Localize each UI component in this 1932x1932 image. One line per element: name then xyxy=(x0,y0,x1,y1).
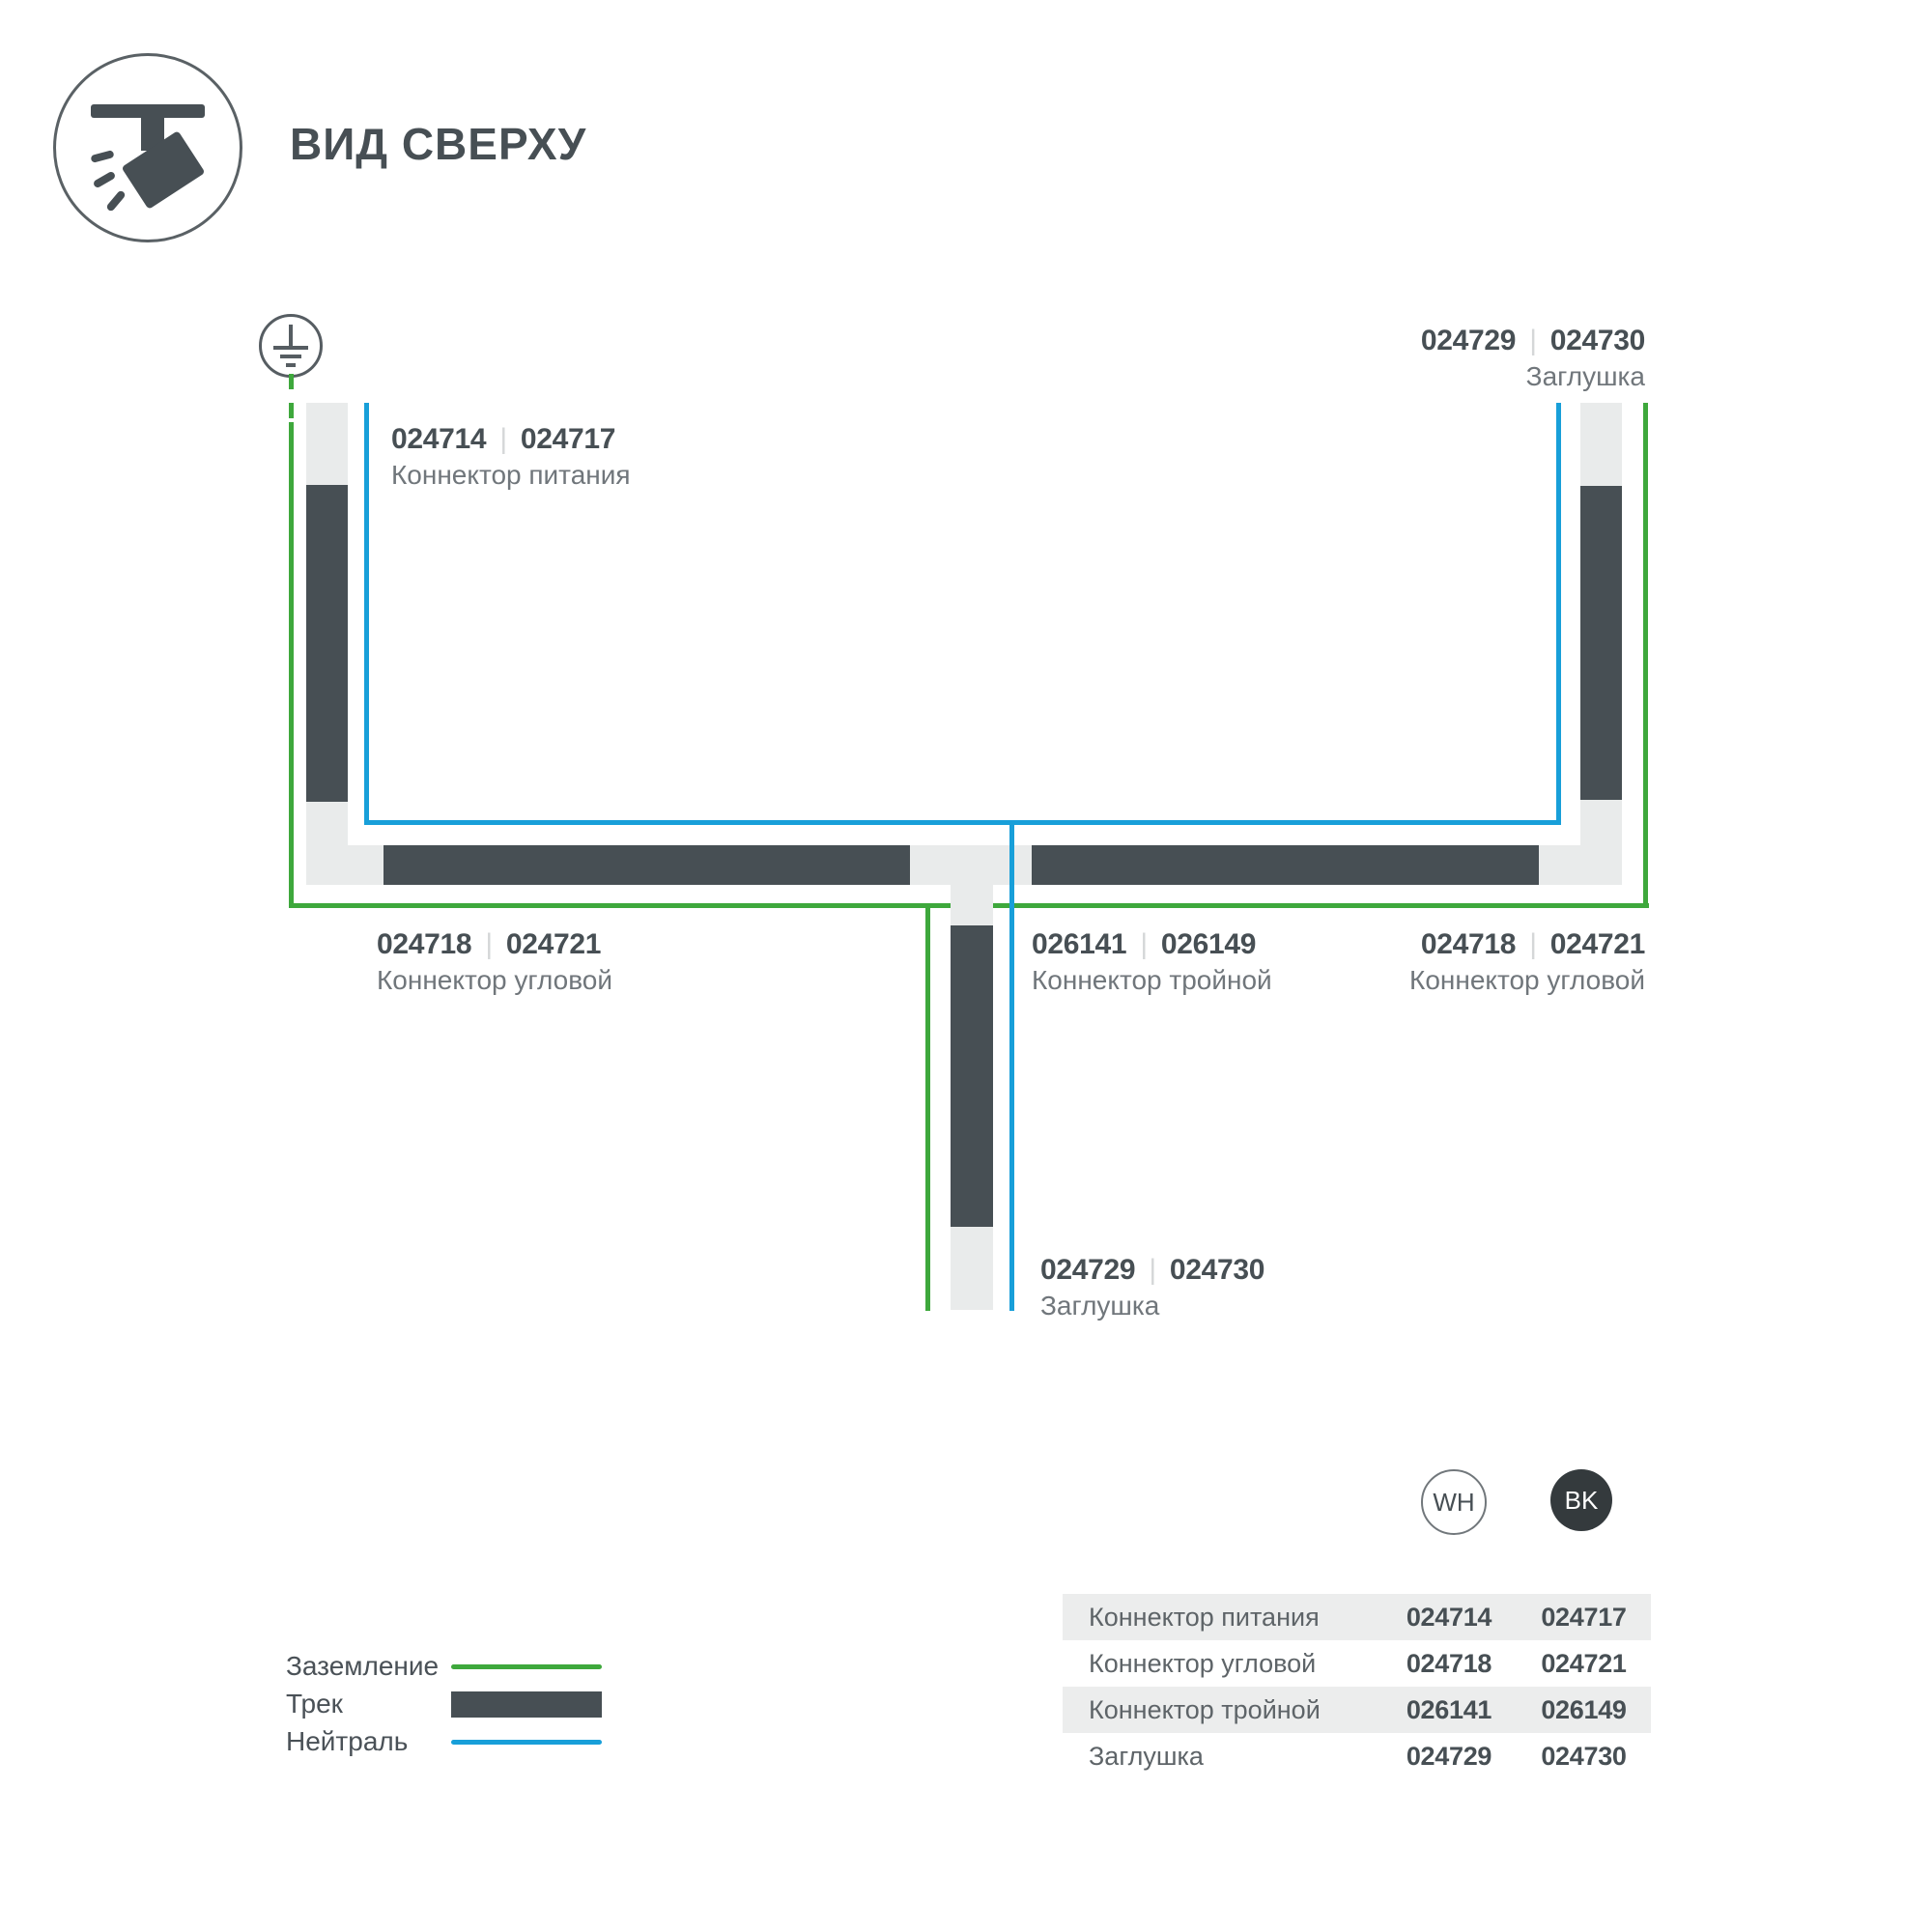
connector-name: Коннектор тройной xyxy=(1032,964,1272,997)
track-left xyxy=(306,485,348,802)
part-codes: 024714|024717 xyxy=(391,422,631,457)
table-row: Коннектор угловой 024718 024721 xyxy=(1063,1640,1651,1687)
legend-swatch-neutral-line xyxy=(451,1740,602,1745)
table-cell-name: Заглушка xyxy=(1063,1742,1381,1772)
tee-connector-piece xyxy=(951,885,993,925)
variant-badge-wh: WH xyxy=(1421,1469,1487,1535)
table-cell-bk-code: 024717 xyxy=(1517,1603,1651,1633)
part-codes: 024718|024721 xyxy=(1409,927,1645,962)
endcap-top-piece xyxy=(1580,403,1622,486)
ground-line-dashed xyxy=(289,374,294,424)
part-code-bk: 026149 xyxy=(1161,928,1256,960)
neutral-line-bottom xyxy=(364,820,1561,825)
part-code-wh: 024729 xyxy=(1040,1254,1135,1286)
table-cell-name: Коннектор тройной xyxy=(1063,1695,1381,1725)
legend-row-track: Трек xyxy=(286,1686,602,1722)
legend-swatch-track-bar xyxy=(451,1691,602,1718)
page-canvas: ВИД СВЕРХУ 024714|024717 Коннектор питан… xyxy=(0,0,1932,1932)
table-row: Заглушка 024729 024730 xyxy=(1063,1733,1651,1779)
track-bottom-right xyxy=(1032,845,1539,885)
corner-connector-right xyxy=(1580,800,1622,885)
legend-label: Заземление xyxy=(286,1651,451,1682)
table-row: Коннектор тройной 026141 026149 xyxy=(1063,1687,1651,1733)
label-corner-left: 024718|024721 Коннектор угловой xyxy=(377,927,612,997)
ground-line-left xyxy=(289,422,294,908)
code-divider: | xyxy=(1149,1254,1156,1286)
part-code-bk: 024730 xyxy=(1550,325,1645,356)
table-cell-bk-code: 026149 xyxy=(1517,1695,1651,1725)
power-connector-piece xyxy=(306,403,348,485)
legend-label: Трек xyxy=(286,1689,451,1719)
ground-stroke xyxy=(286,363,296,367)
variant-label: BK xyxy=(1565,1486,1599,1516)
code-divider: | xyxy=(1529,325,1537,356)
table-row: Коннектор питания 024714 024717 xyxy=(1063,1594,1651,1640)
table-cell-name: Коннектор питания xyxy=(1063,1603,1381,1633)
track-stem xyxy=(951,925,993,1227)
variant-badge-bk: BK xyxy=(1550,1469,1612,1531)
label-endcap-top: 024729|024730 Заглушка xyxy=(1421,324,1645,393)
legend-row-ground: Заземление xyxy=(286,1648,602,1685)
connector-name: Коннектор питания xyxy=(391,459,631,492)
legend-row-neutral: Нейтраль xyxy=(286,1723,602,1760)
part-codes: 024729|024730 xyxy=(1040,1253,1264,1288)
table-cell-bk-code: 024721 xyxy=(1517,1649,1651,1679)
part-code-bk: 024730 xyxy=(1170,1254,1264,1286)
part-codes: 026141|026149 xyxy=(1032,927,1272,962)
code-divider: | xyxy=(1140,928,1148,960)
ground-line-right xyxy=(1643,403,1648,908)
part-code-wh: 026141 xyxy=(1032,928,1126,960)
table-cell-wh-code: 024714 xyxy=(1381,1603,1517,1633)
light-ray-shape xyxy=(105,189,127,213)
part-code-wh: 024729 xyxy=(1421,325,1516,356)
light-ray-shape xyxy=(90,150,114,163)
corner-connector-left xyxy=(306,845,384,885)
label-endcap-bottom: 024729|024730 Заглушка xyxy=(1040,1253,1264,1322)
connector-name: Заглушка xyxy=(1040,1290,1264,1322)
connector-name: Коннектор угловой xyxy=(377,964,612,997)
table-cell-wh-code: 026141 xyxy=(1381,1695,1517,1725)
label-tee-connector: 026141|026149 Коннектор тройной xyxy=(1032,927,1272,997)
part-codes: 024729|024730 xyxy=(1421,324,1645,358)
page-title: ВИД СВЕРХУ xyxy=(290,118,586,170)
part-codes: 024718|024721 xyxy=(377,927,612,962)
table-cell-wh-code: 024718 xyxy=(1381,1649,1517,1679)
part-code-wh: 024718 xyxy=(377,928,471,960)
track-light-icon xyxy=(53,53,242,242)
neutral-line-branch xyxy=(1009,820,1014,1311)
neutral-line-left xyxy=(364,403,369,824)
connector-name: Заглушка xyxy=(1421,360,1645,393)
label-power-connector: 024714|024717 Коннектор питания xyxy=(391,422,631,492)
connector-name: Коннектор угловой xyxy=(1409,964,1645,997)
spotlight-shape xyxy=(121,130,205,210)
parts-table: Коннектор питания 024714 024717 Коннекто… xyxy=(1063,1594,1651,1779)
part-code-bk: 024721 xyxy=(1550,928,1645,960)
legend-label: Нейтраль xyxy=(286,1726,451,1757)
ground-stroke xyxy=(289,325,293,347)
code-divider: | xyxy=(499,423,507,455)
track-right xyxy=(1580,486,1622,800)
code-divider: | xyxy=(1529,928,1537,960)
code-divider: | xyxy=(485,928,493,960)
ground-stroke xyxy=(273,346,308,350)
part-code-bk: 024717 xyxy=(521,423,615,455)
light-ray-shape xyxy=(93,171,117,189)
table-cell-bk-code: 024730 xyxy=(1517,1742,1651,1772)
neutral-line-right xyxy=(1556,403,1561,825)
ground-line-branch xyxy=(925,903,930,1311)
label-corner-right: 024718|024721 Коннектор угловой xyxy=(1409,927,1645,997)
part-code-wh: 024714 xyxy=(391,423,486,455)
part-code-wh: 024718 xyxy=(1421,928,1516,960)
table-cell-wh-code: 024729 xyxy=(1381,1742,1517,1772)
endcap-bottom-piece xyxy=(951,1227,993,1310)
part-code-bk: 024721 xyxy=(506,928,601,960)
ground-earth-icon xyxy=(259,314,323,378)
legend-swatch-ground-line xyxy=(451,1664,602,1669)
variant-label: WH xyxy=(1433,1488,1474,1518)
track-bottom-left xyxy=(384,845,910,885)
ground-stroke xyxy=(280,355,301,358)
table-cell-name: Коннектор угловой xyxy=(1063,1649,1381,1679)
